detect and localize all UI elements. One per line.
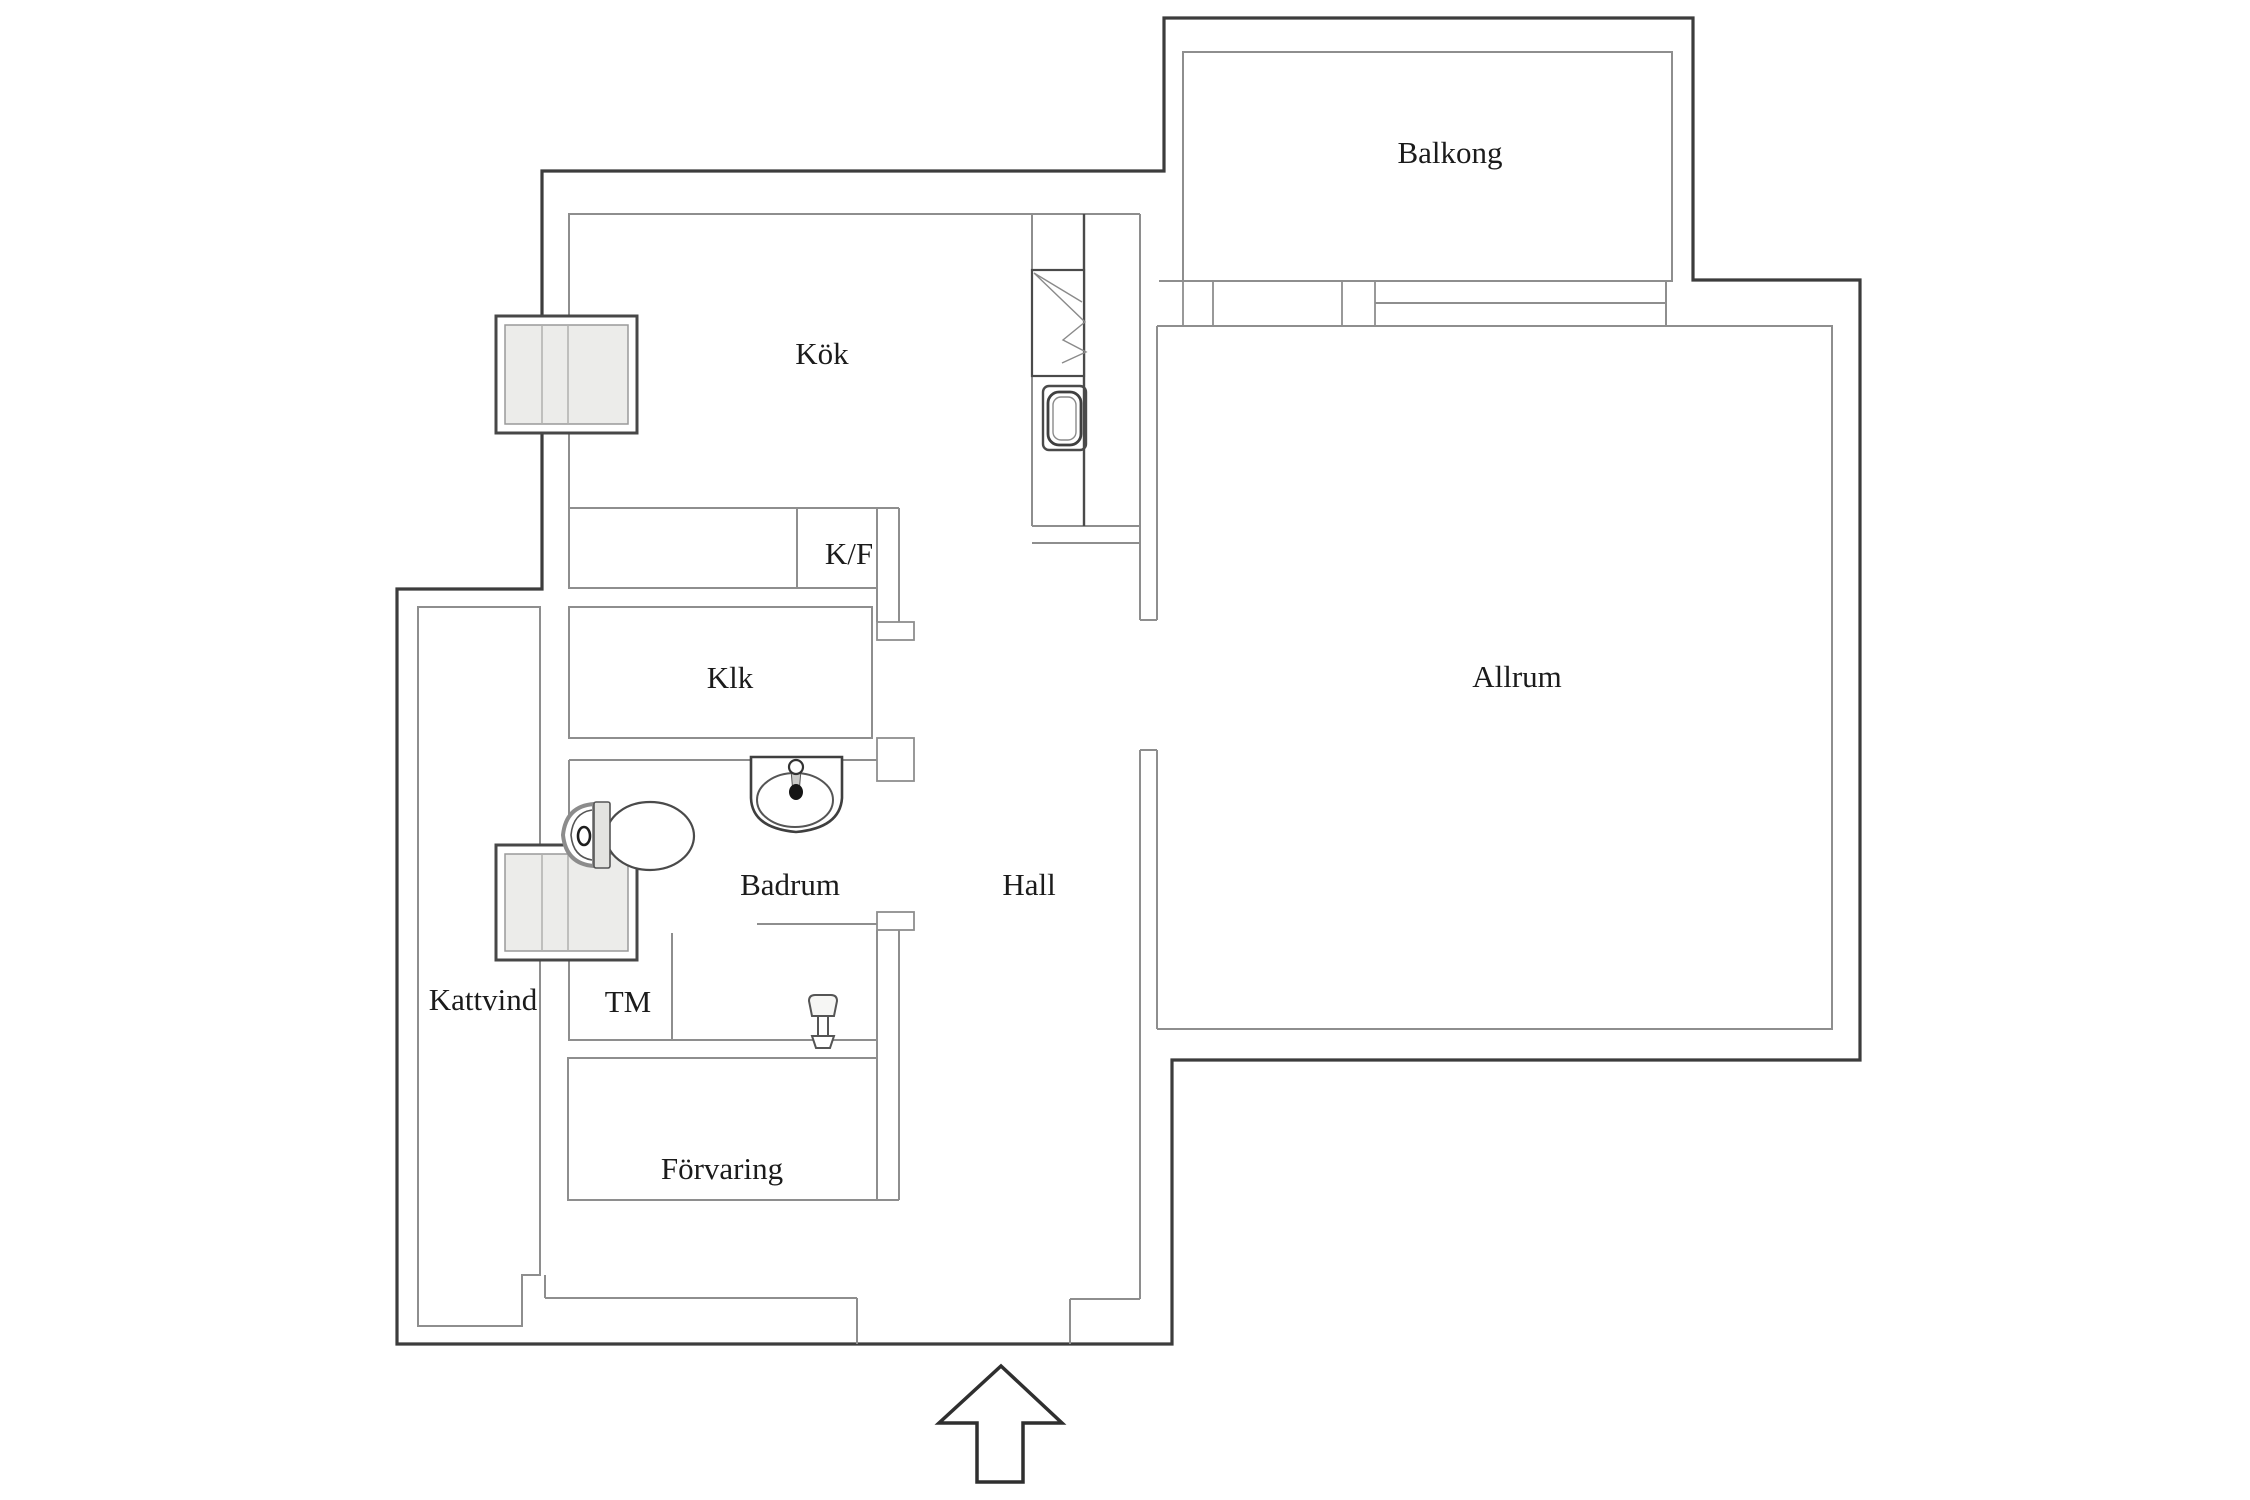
- balcony-door-pier: [1183, 281, 1213, 326]
- stove-icon: [1032, 270, 1086, 376]
- windows: [496, 316, 637, 960]
- label-allrum: Allrum: [1472, 659, 1562, 694]
- window-icon-kitchen: [496, 316, 637, 433]
- entrance-arrow-icon: [939, 1366, 1062, 1482]
- label-hall: Hall: [1002, 867, 1055, 902]
- walls: [397, 18, 1860, 1344]
- label-kattvind: Kattvind: [429, 982, 538, 1017]
- label-balkong: Balkong: [1397, 135, 1502, 170]
- kitchen-sink-icon: [1043, 386, 1086, 450]
- door-jamb: [877, 912, 914, 930]
- floor-plan-drawing: Balkong Kök K/F Klk Badrum Hall Allrum K…: [0, 0, 2250, 1500]
- label-forvaring: Förvaring: [661, 1151, 783, 1186]
- label-kf: K/F: [825, 536, 873, 571]
- kitchen-fixtures: [1032, 214, 1140, 543]
- balcony-door-post: [1342, 281, 1375, 326]
- washbasin-icon: [751, 757, 842, 832]
- door-jamb: [877, 738, 914, 781]
- label-kok: Kök: [795, 336, 849, 371]
- door-jamb: [877, 622, 914, 640]
- floor-plan-page: Balkong Kök K/F Klk Badrum Hall Allrum K…: [0, 0, 2250, 1500]
- label-badrum: Badrum: [740, 867, 840, 902]
- label-tm: TM: [605, 984, 652, 1019]
- toilet-icon: [563, 802, 694, 870]
- shower-icon: [809, 995, 837, 1048]
- outer-wall-outline: [397, 18, 1860, 1344]
- kattvind-room-outline: [418, 607, 545, 1326]
- balcony-window-band: [1375, 281, 1666, 326]
- window-icon-kattvind: [496, 845, 637, 960]
- label-klk: Klk: [707, 660, 754, 695]
